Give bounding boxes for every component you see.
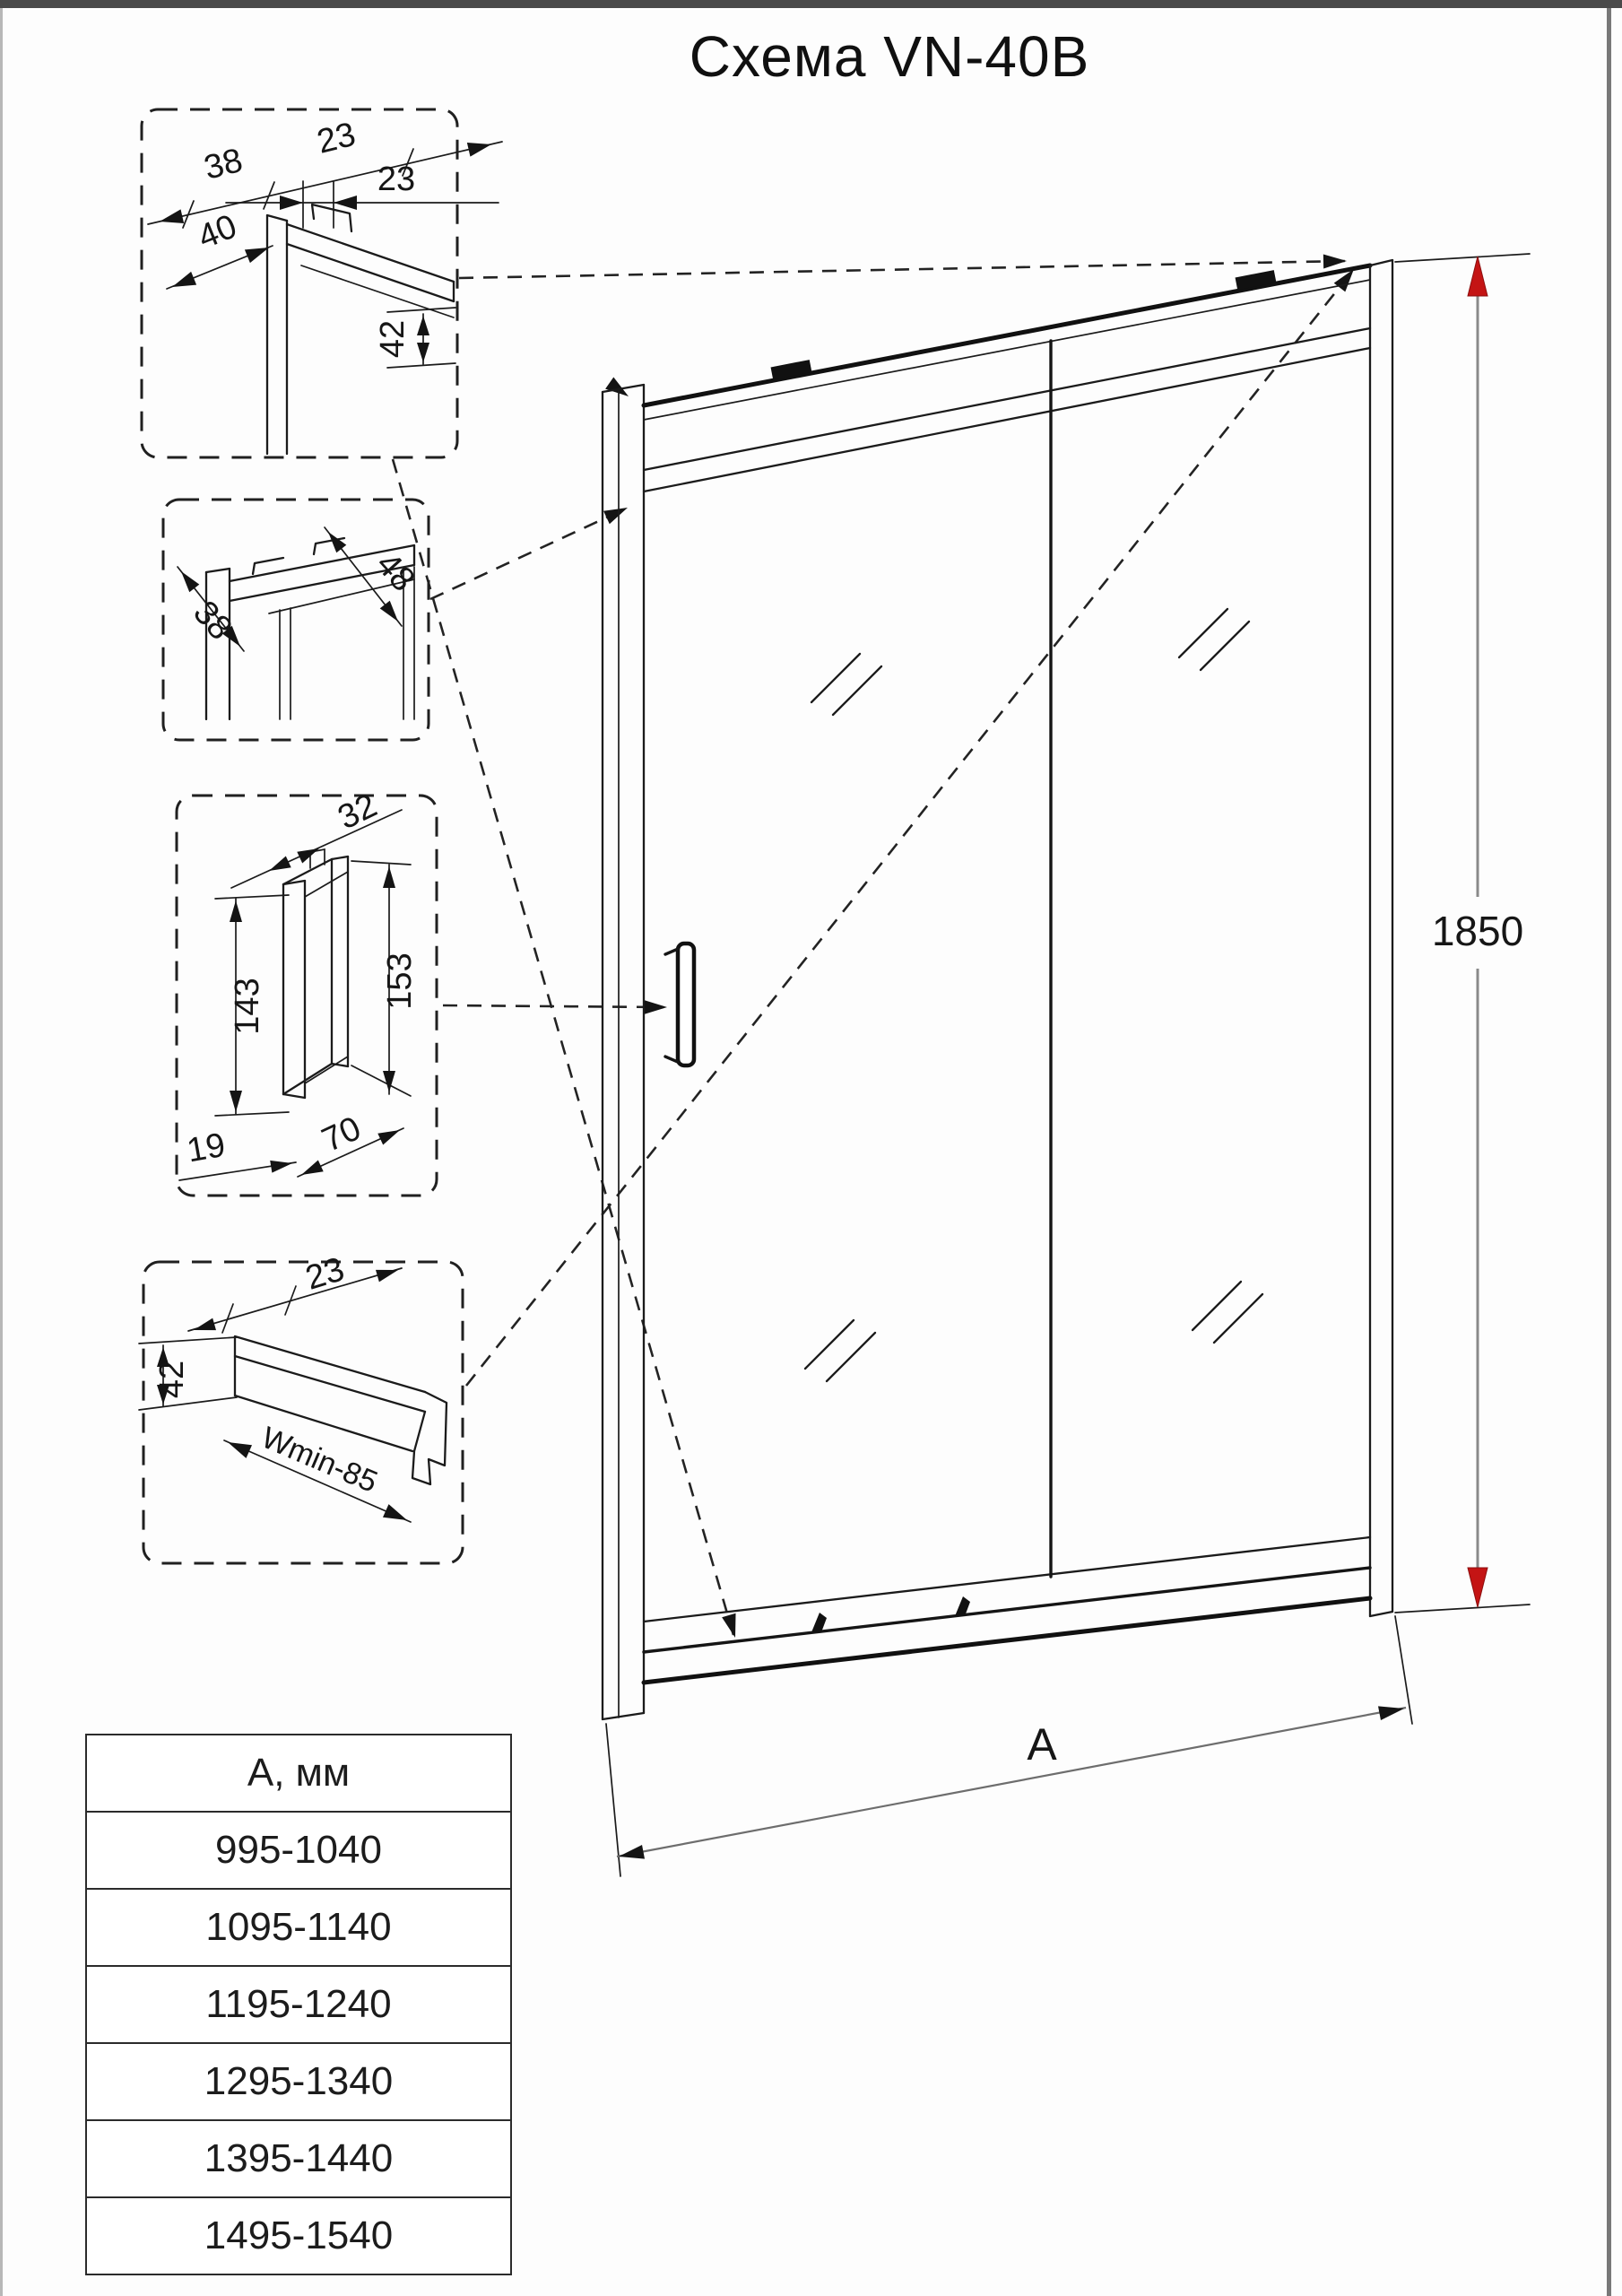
size-table-row: 1495-1540 xyxy=(87,2196,510,2274)
dim-153-label: 153 xyxy=(381,952,419,1009)
size-table-row: 1195-1240 xyxy=(87,1965,510,2042)
dim-23-diagonal-label: 23 xyxy=(314,116,360,161)
schematic-page: Схема VN-40B xyxy=(0,0,1622,2296)
size-table-row: 1295-1340 xyxy=(87,2042,510,2119)
dimension-width-a: A xyxy=(606,1616,1412,1876)
glass-hatch-marks xyxy=(805,609,1262,1381)
size-table-row: 995-1040 xyxy=(87,1811,510,1888)
dimension-height-1850: 1850 xyxy=(1395,254,1530,1613)
detail-box-bottom-rail: 23 42 Wmin-85 xyxy=(139,1250,463,1563)
detail-box-top-corner: 38 23 23 40 42 xyxy=(142,109,502,457)
dim-23-label: 23 xyxy=(301,1250,349,1298)
detail-box-handle: 32 143 153 19 70 xyxy=(177,787,437,1196)
size-table-header: А, мм xyxy=(87,1735,510,1811)
dim-38-label: 38 xyxy=(201,142,247,187)
size-table-row: 1095-1140 xyxy=(87,1888,510,1965)
shower-door-drawing xyxy=(603,260,1392,1719)
dim-42-label: 42 xyxy=(153,1361,191,1398)
dim-40-label: 40 xyxy=(193,207,242,257)
door-handle xyxy=(665,944,694,1065)
detail-box-rail-section: 38 48 xyxy=(163,500,429,740)
size-table-row: 1395-1440 xyxy=(87,2119,510,2196)
dim-wmin-label: Wmin-85 xyxy=(256,1421,382,1500)
height-dimension-label: 1850 xyxy=(1432,908,1523,954)
dim-42-label: 42 xyxy=(374,320,412,358)
dim-70-label: 70 xyxy=(317,1109,367,1160)
dim-143-label: 143 xyxy=(229,978,266,1034)
width-dimension-label: A xyxy=(1027,1719,1057,1770)
dim-19-label: 19 xyxy=(184,1126,228,1170)
leader-lines xyxy=(393,254,1359,1639)
dim-23-horizontal-label: 23 xyxy=(377,161,415,198)
size-table: А, мм 995-1040 1095-1140 1195-1240 1295-… xyxy=(85,1734,512,2275)
